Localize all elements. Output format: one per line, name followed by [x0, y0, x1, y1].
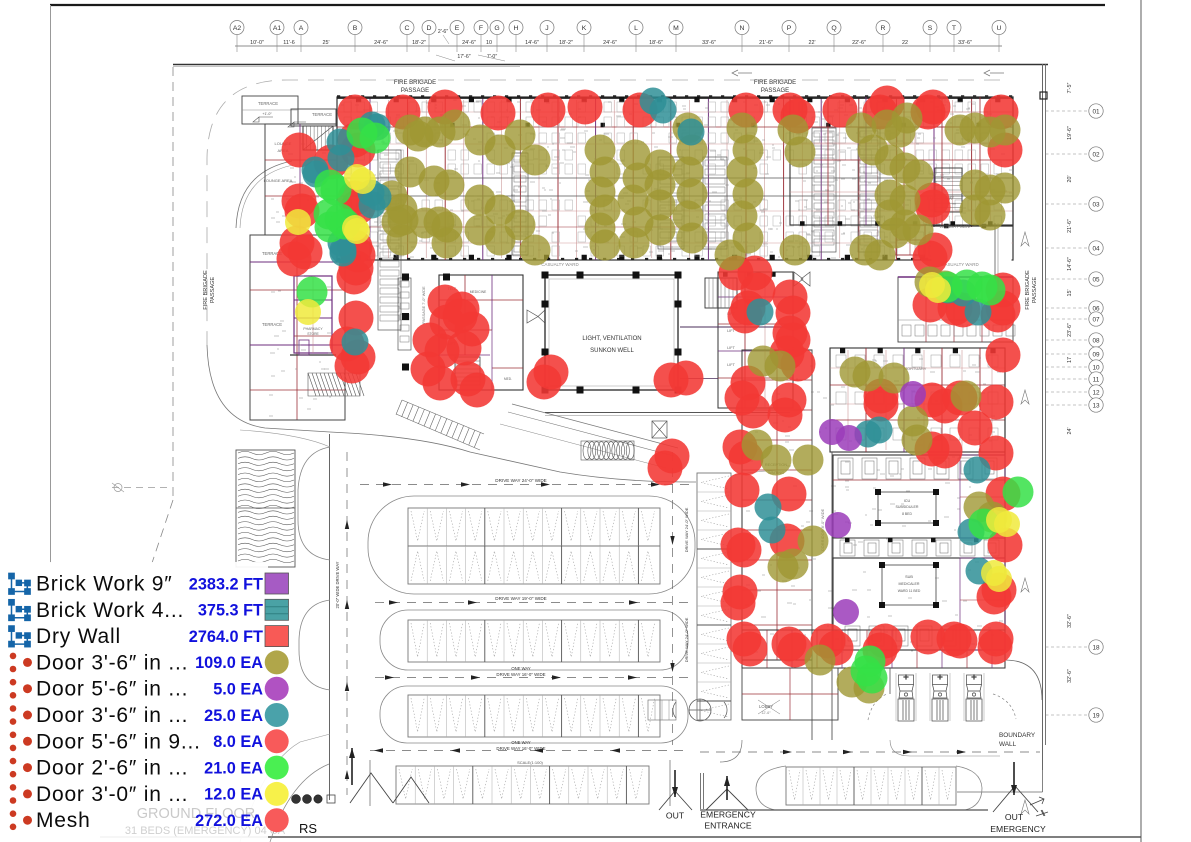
svg-text:22: 22 — [902, 40, 908, 46]
svg-text:EMERGENCY: EMERGENCY — [990, 824, 1046, 834]
svg-text:U: U — [997, 25, 1002, 32]
svg-text:PASSAGE: PASSAGE — [401, 88, 429, 94]
svg-text:F: F — [479, 25, 483, 32]
svg-text:18'-2″: 18'-2″ — [412, 40, 426, 46]
svg-text:SUBSIDULER: SUBSIDULER — [896, 505, 919, 509]
svg-text:12: 12 — [1092, 389, 1100, 396]
svg-text:MEDICALER: MEDICALER — [899, 582, 920, 586]
svg-text:MED.: MED. — [504, 377, 512, 381]
svg-text:20'-0″ WIDE DRIVE WAY: 20'-0″ WIDE DRIVE WAY — [335, 561, 340, 608]
svg-text:PASSAGE 7'-0″ WIDE: PASSAGE 7'-0″ WIDE — [422, 286, 426, 324]
svg-text:J: J — [545, 25, 548, 32]
svg-text:12'-6″: 12'-6″ — [761, 711, 771, 715]
svg-text:C: C — [405, 25, 410, 32]
svg-text:10'-0″: 10'-0″ — [250, 40, 264, 46]
svg-text:21.0 EA: 21.0 EA — [204, 759, 263, 777]
svg-text:24'-6″: 24'-6″ — [462, 40, 476, 46]
svg-text:Door 3'-6″ in ...: Door 3'-6″ in ... — [36, 651, 188, 674]
svg-text:M: M — [673, 25, 679, 32]
svg-text:STORE: STORE — [307, 332, 319, 336]
svg-text:WALL: WALL — [999, 741, 1017, 748]
svg-text:2383.2 FT: 2383.2 FT — [189, 575, 263, 593]
svg-text:FIRE BRIGADE: FIRE BRIGADE — [394, 80, 436, 86]
svg-text:15': 15' — [1067, 289, 1073, 296]
svg-text:LOUNGE AREA: LOUNGE AREA — [264, 178, 293, 183]
svg-text:07: 07 — [1092, 316, 1100, 323]
svg-text:WARD 11 BED: WARD 11 BED — [898, 589, 921, 593]
svg-text:10: 10 — [486, 40, 492, 46]
svg-text:SCALE(1:100): SCALE(1:100) — [517, 760, 543, 765]
svg-text:8.0 EA: 8.0 EA — [213, 733, 263, 751]
svg-text:SUNKON WELL: SUNKON WELL — [590, 348, 634, 354]
svg-text:PASSAGE: PASSAGE — [1032, 277, 1038, 304]
svg-text:LAUNDRY GATE: LAUNDRY GATE — [940, 224, 971, 229]
svg-text:DRIVE WAY 24'-0″ WIDE: DRIVE WAY 24'-0″ WIDE — [495, 478, 546, 483]
svg-text:01: 01 — [1092, 108, 1100, 115]
svg-text:PASSAGE: PASSAGE — [761, 88, 789, 94]
svg-text:32'-6″: 32'-6″ — [1067, 614, 1073, 628]
svg-text:Door 5'-6″ in 9...: Door 5'-6″ in 9... — [36, 730, 201, 753]
svg-text:12.0 EA: 12.0 EA — [204, 786, 263, 804]
svg-text:Door 3'-6″ in ...: Door 3'-6″ in ... — [36, 704, 188, 727]
svg-text:2'-6″: 2'-6″ — [438, 29, 448, 35]
svg-text:PHARMACY: PHARMACY — [303, 327, 323, 331]
svg-text:OUT: OUT — [1005, 812, 1024, 822]
svg-text:Brick Work 9″: Brick Work 9″ — [36, 573, 172, 596]
svg-text:L: L — [634, 25, 638, 32]
svg-text:H: H — [514, 25, 519, 32]
svg-text:MEDICINE: MEDICINE — [470, 290, 487, 294]
svg-text:20': 20' — [1067, 175, 1073, 182]
svg-text:08: 08 — [1092, 337, 1100, 344]
svg-text:375.3 FT: 375.3 FT — [198, 602, 263, 620]
svg-text:FIRE BRIGADE: FIRE BRIGADE — [754, 80, 796, 86]
svg-text:11'-6: 11'-6 — [283, 40, 294, 46]
svg-text:R: R — [881, 25, 886, 32]
svg-text:22': 22' — [808, 40, 815, 46]
svg-text:P: P — [787, 25, 792, 32]
svg-text:Door 5'-6″ in ...: Door 5'-6″ in ... — [36, 678, 188, 701]
svg-text:22'-6″: 22'-6″ — [852, 40, 866, 46]
svg-text:D: D — [427, 25, 432, 32]
svg-text:S: S — [928, 25, 933, 32]
svg-text:BOUNDARY: BOUNDARY — [999, 732, 1036, 739]
svg-text:N: N — [740, 25, 745, 32]
svg-text:10: 10 — [1092, 364, 1100, 371]
svg-text:EMERGENCY: EMERGENCY — [700, 810, 756, 820]
svg-text:25.0 EA: 25.0 EA — [204, 707, 263, 725]
svg-text:02: 02 — [1092, 151, 1100, 158]
svg-text:CASUALTY WARD: CASUALTY WARD — [541, 262, 578, 267]
svg-text:FIRE BRIGADE: FIRE BRIGADE — [1025, 270, 1031, 310]
svg-text:LIGHT, VENTILATION: LIGHT, VENTILATION — [582, 336, 641, 342]
svg-text:03: 03 — [1092, 201, 1100, 208]
svg-text:109.0 EA: 109.0 EA — [195, 654, 263, 672]
svg-text:Brick Work 4...: Brick Work 4... — [36, 599, 184, 622]
svg-text:13: 13 — [1092, 402, 1100, 409]
svg-text:+1'-0″: +1'-0″ — [262, 112, 272, 116]
svg-text:PASSAGE: PASSAGE — [210, 277, 216, 304]
svg-text:05: 05 — [1092, 276, 1100, 283]
svg-text:17'-6″: 17'-6″ — [457, 54, 470, 60]
svg-text:21'-6″: 21'-6″ — [1067, 219, 1073, 233]
svg-text:09: 09 — [1092, 351, 1100, 358]
svg-text:2764.0 FT: 2764.0 FT — [189, 628, 263, 646]
svg-text:A2: A2 — [233, 25, 242, 32]
svg-text:8 BED: 8 BED — [902, 512, 912, 516]
svg-text:A1: A1 — [273, 25, 282, 32]
svg-text:18'-2″: 18'-2″ — [559, 40, 573, 46]
svg-text:33'-6″: 33'-6″ — [958, 40, 972, 46]
svg-text:RS: RS — [299, 821, 317, 836]
svg-text:32'-6″: 32'-6″ — [1067, 669, 1073, 683]
svg-text:LIFT: LIFT — [727, 363, 735, 367]
svg-text:272.0 EA: 272.0 EA — [195, 812, 263, 830]
svg-text:Q: Q — [831, 25, 836, 32]
svg-text:B: B — [353, 25, 358, 32]
svg-text:Dry Wall: Dry Wall — [36, 625, 121, 648]
svg-text:ENTRANCE: ENTRANCE — [704, 821, 752, 831]
svg-text:SUB: SUB — [905, 575, 913, 579]
svg-text:25': 25' — [322, 40, 329, 46]
svg-text:T: T — [952, 25, 956, 32]
svg-text:18'-6″: 18'-6″ — [649, 40, 663, 46]
svg-text:24'-6″: 24'-6″ — [603, 40, 617, 46]
svg-text:Door 2'-6″ in ...: Door 2'-6″ in ... — [36, 757, 188, 780]
svg-text:DRIVE WAY 16'-0″ WIDE: DRIVE WAY 16'-0″ WIDE — [496, 672, 545, 677]
svg-text:7'-5″: 7'-5″ — [1067, 83, 1073, 94]
svg-text:DRIVE WAY 16'-0″ WIDE: DRIVE WAY 16'-0″ WIDE — [496, 746, 545, 751]
svg-text:K: K — [582, 25, 587, 32]
svg-text:11: 11 — [1093, 376, 1100, 383]
svg-text:14'-6″: 14'-6″ — [1067, 257, 1073, 271]
svg-text:G: G — [494, 25, 499, 32]
svg-text:14'-6″: 14'-6″ — [525, 40, 539, 46]
svg-text:DRIVE WAY 19'-0″ WIDE: DRIVE WAY 19'-0″ WIDE — [495, 596, 546, 601]
svg-text:17: 17 — [1067, 357, 1073, 363]
svg-text:19'-6″: 19'-6″ — [1067, 126, 1073, 140]
svg-text:5.0 EA: 5.0 EA — [213, 681, 263, 699]
svg-text:24'-6″: 24'-6″ — [374, 40, 388, 46]
svg-text:21'-6″: 21'-6″ — [759, 40, 773, 46]
svg-text:E: E — [455, 25, 460, 32]
svg-text:33'-6″: 33'-6″ — [702, 40, 716, 46]
svg-text:DRIVE WAY 24'-0″ WIDE: DRIVE WAY 24'-0″ WIDE — [684, 507, 689, 552]
svg-text:OUT: OUT — [666, 811, 685, 821]
svg-text:TERRACE: TERRACE — [262, 322, 282, 327]
svg-text:ONE WAY: ONE WAY — [511, 740, 531, 745]
svg-text:23'-6″: 23'-6″ — [1067, 323, 1073, 337]
svg-text:ONE WAY: ONE WAY — [511, 666, 531, 671]
svg-text:19: 19 — [1092, 712, 1100, 719]
svg-text:A: A — [299, 25, 304, 32]
svg-text:24': 24' — [1067, 427, 1073, 434]
svg-text:DRIVE WAY 24'-0″ WIDE: DRIVE WAY 24'-0″ WIDE — [684, 617, 689, 662]
svg-text:18: 18 — [1092, 644, 1100, 651]
svg-text:TERRACE: TERRACE — [312, 112, 332, 117]
svg-text:04: 04 — [1092, 245, 1100, 252]
svg-text:ICU: ICU — [904, 499, 911, 503]
svg-text:Door 3'-0″ in ...: Door 3'-0″ in ... — [36, 783, 188, 806]
svg-text:06: 06 — [1092, 305, 1100, 312]
svg-text:LIFT: LIFT — [727, 346, 735, 350]
svg-text:Mesh: Mesh — [36, 809, 91, 832]
svg-text:FIRE BRIGADE: FIRE BRIGADE — [203, 270, 209, 310]
svg-text:TERRACE: TERRACE — [258, 101, 278, 106]
